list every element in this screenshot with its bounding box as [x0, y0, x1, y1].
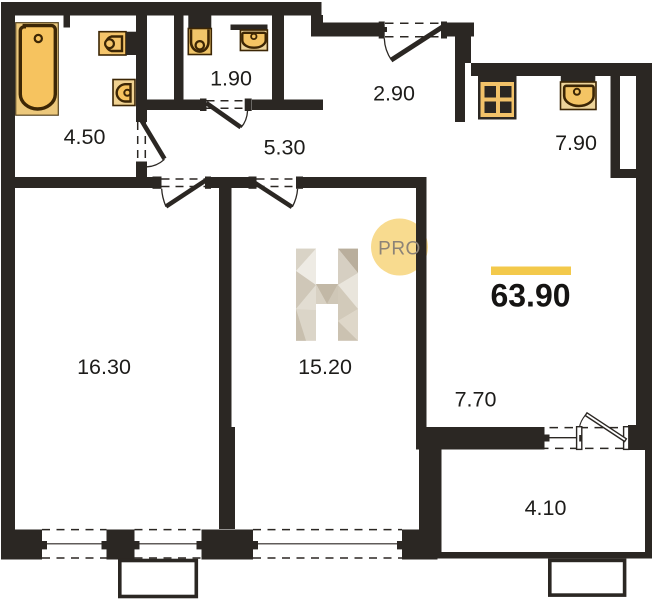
svg-text:1.90: 1.90 — [210, 67, 252, 91]
svg-text:4.50: 4.50 — [64, 125, 106, 149]
svg-text:16.30: 16.30 — [77, 355, 131, 379]
svg-text:7.70: 7.70 — [455, 387, 497, 411]
svg-text:63.90: 63.90 — [490, 278, 570, 314]
svg-text:7.90: 7.90 — [555, 131, 597, 155]
svg-text:4.10: 4.10 — [525, 496, 567, 520]
svg-text:2.90: 2.90 — [373, 81, 415, 105]
svg-text:5.30: 5.30 — [264, 136, 306, 160]
svg-text:PRO: PRO — [378, 239, 421, 260]
svg-text:15.20: 15.20 — [298, 355, 352, 379]
